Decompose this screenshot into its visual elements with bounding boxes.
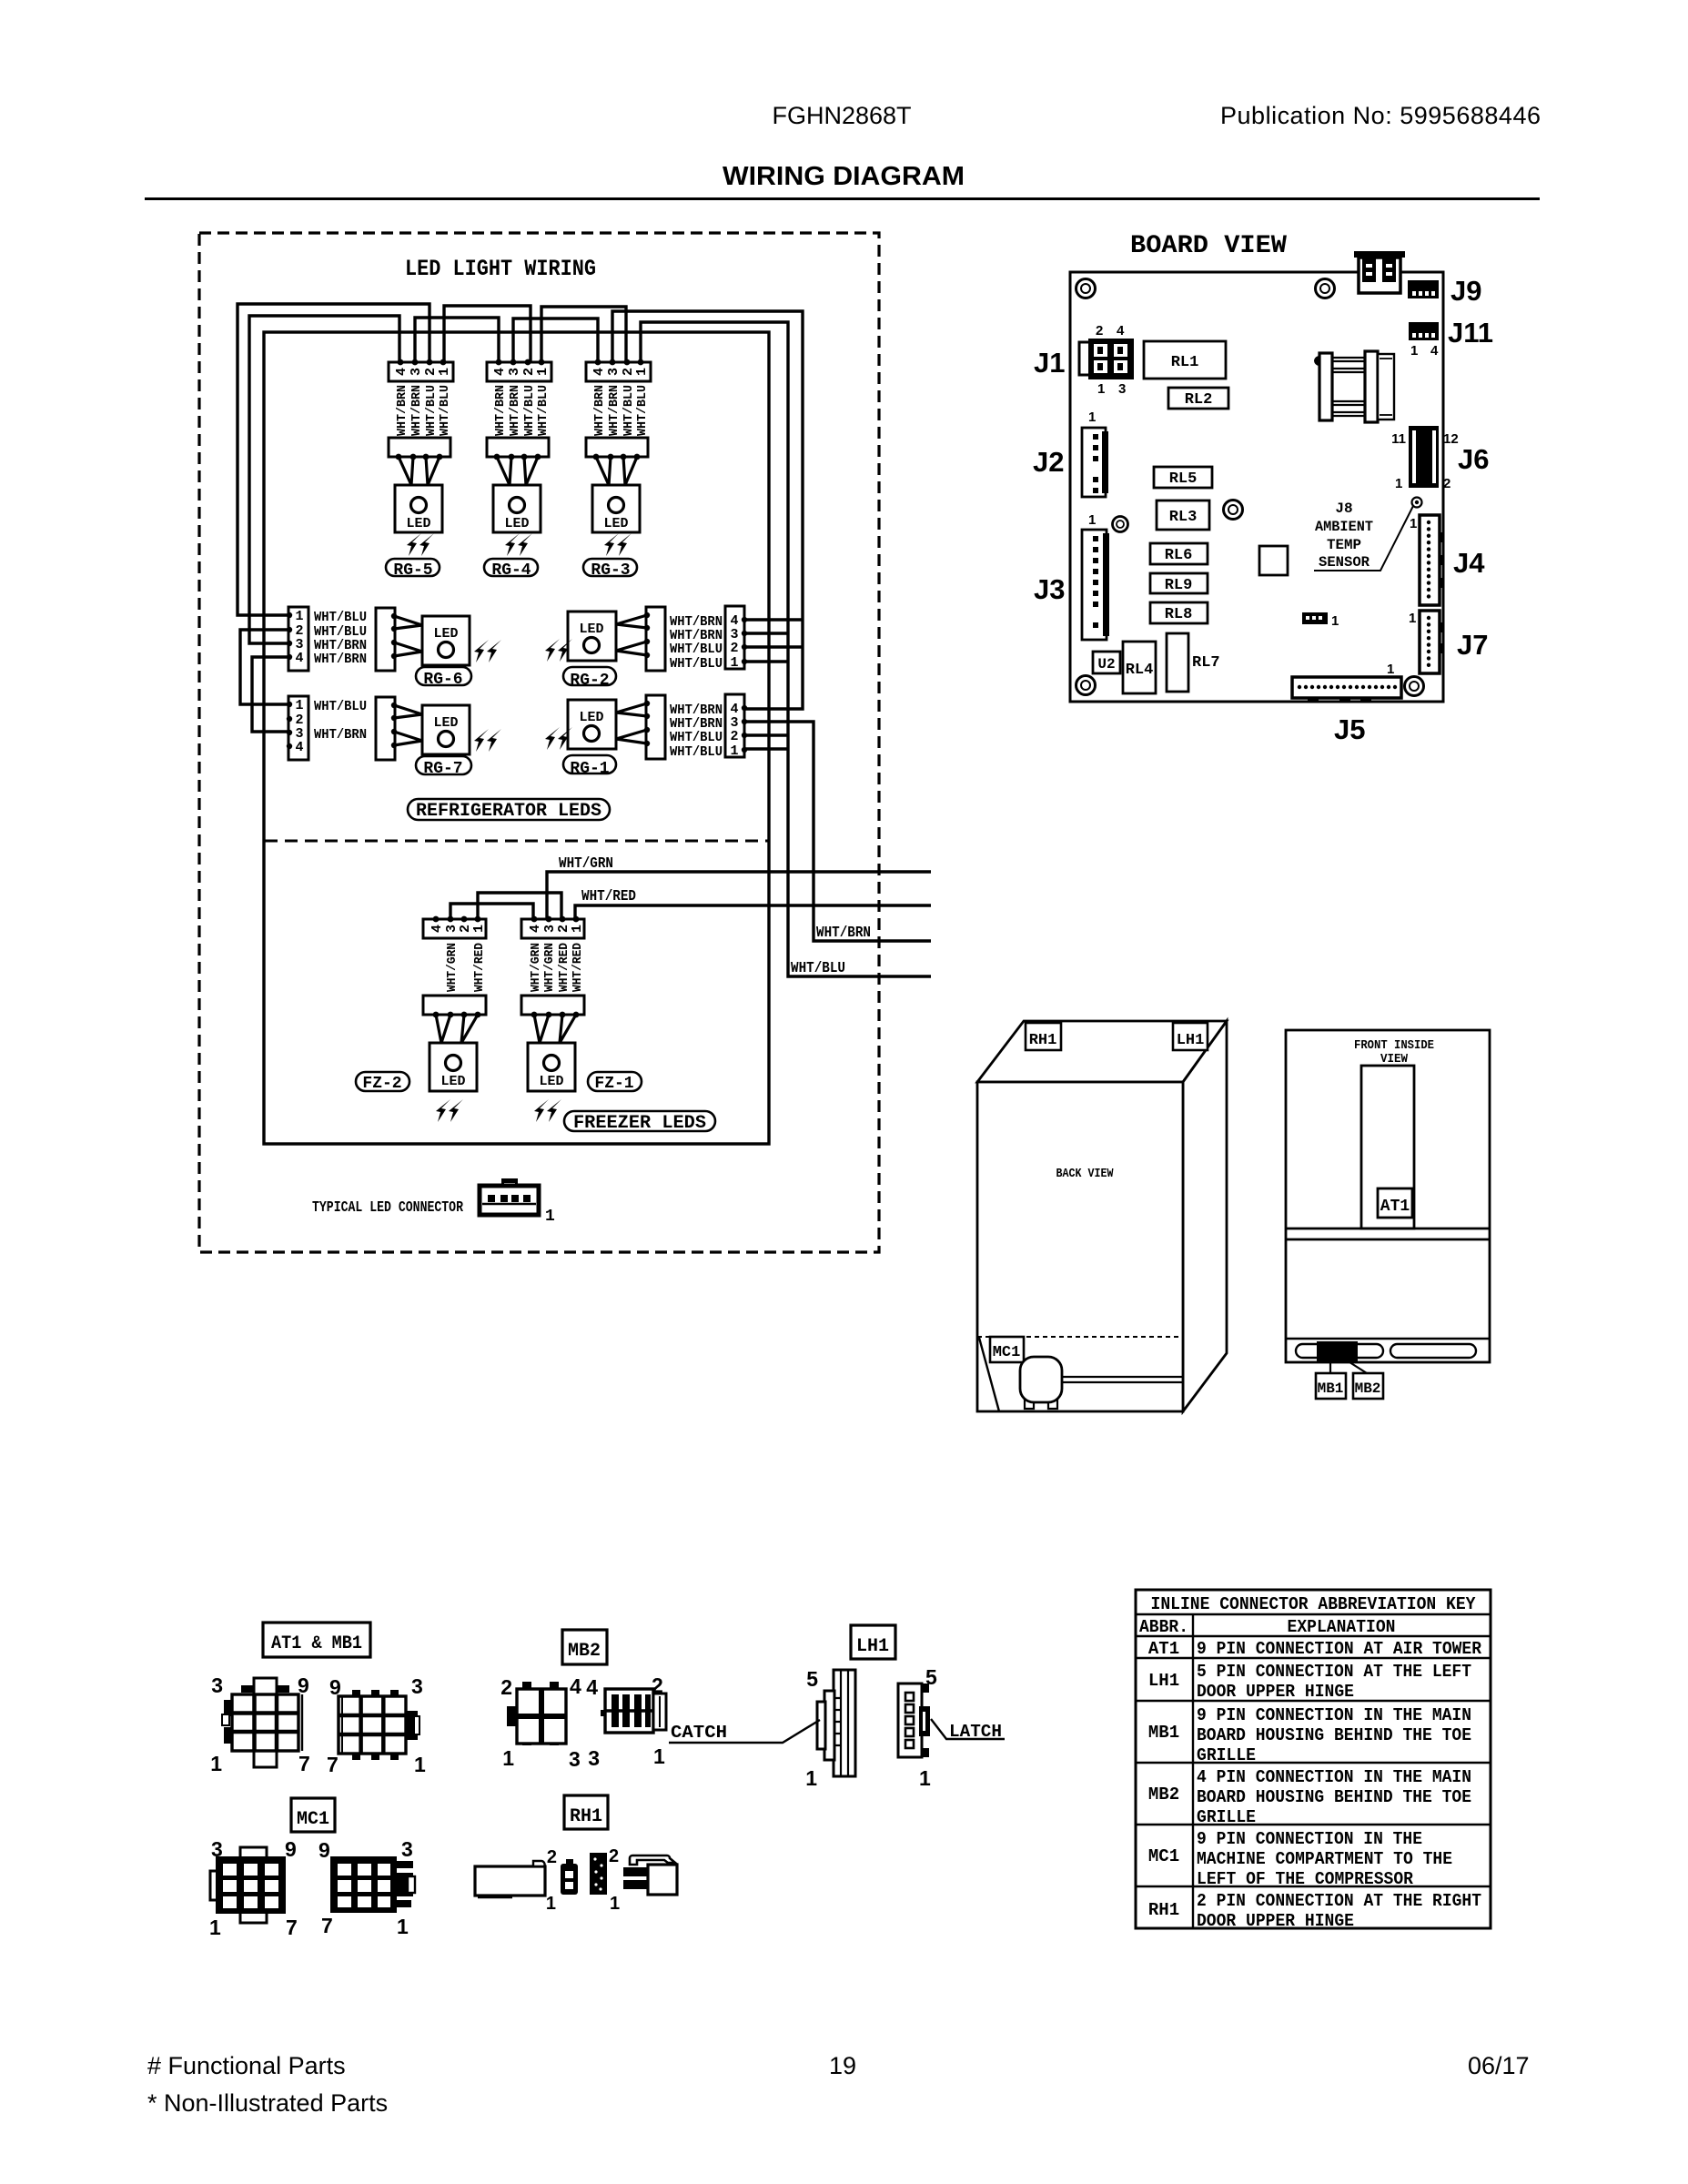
svg-text:WHT/GRN: WHT/GRN	[445, 943, 460, 992]
svg-text:1: 1	[1088, 409, 1096, 425]
svg-text:RL3: RL3	[1169, 509, 1198, 526]
svg-text:U2: U2	[1097, 656, 1115, 672]
svg-text:WHT/BLU: WHT/BLU	[424, 385, 439, 436]
svg-text:WHT/BRN: WHT/BRN	[592, 385, 607, 436]
svg-text:RL8: RL8	[1165, 606, 1193, 623]
svg-text:9: 9	[318, 1838, 330, 1862]
svg-text:WHT/BLU: WHT/BLU	[635, 385, 650, 436]
svg-text:DOOR UPPER HINGE: DOOR UPPER HINGE	[1197, 1682, 1354, 1702]
svg-text:# Functional Parts: # Functional Parts	[147, 2052, 346, 2079]
svg-text:MB1: MB1	[1318, 1380, 1344, 1397]
svg-text:RL9: RL9	[1165, 577, 1193, 594]
svg-text:RG-2: RG-2	[570, 672, 609, 690]
svg-text:RL4: RL4	[1126, 662, 1154, 679]
svg-text:9: 9	[285, 1837, 297, 1861]
svg-text:1: 1	[653, 1744, 665, 1768]
svg-text:LH1: LH1	[1177, 1032, 1205, 1049]
svg-text:WHT/BLU: WHT/BLU	[670, 642, 723, 657]
svg-text:FZ-2: FZ-2	[362, 1075, 401, 1093]
svg-text:J5: J5	[1334, 713, 1365, 745]
svg-text:9: 9	[298, 1673, 309, 1697]
svg-text:J7: J7	[1457, 629, 1488, 661]
svg-text:1: 1	[610, 1894, 620, 1914]
svg-text:MACHINE COMPARTMENT TO THE: MACHINE COMPARTMENT TO THE	[1197, 1849, 1452, 1869]
svg-text:19: 19	[829, 2052, 856, 2079]
svg-text:9 PIN CONNECTION IN THE: 9 PIN CONNECTION IN THE	[1197, 1829, 1422, 1849]
svg-text:WHT/BRN: WHT/BRN	[607, 385, 622, 436]
svg-text:1: 1	[1088, 512, 1096, 528]
svg-text:AT1: AT1	[1380, 1198, 1410, 1216]
svg-text:AMBIENT: AMBIENT	[1315, 519, 1373, 535]
svg-text:1: 1	[1395, 476, 1402, 491]
svg-text:J3: J3	[1034, 573, 1065, 605]
svg-text:1: 1	[414, 1753, 426, 1776]
svg-text:4 PIN CONNECTION IN THE MAIN: 4 PIN CONNECTION IN THE MAIN	[1197, 1767, 1471, 1787]
svg-text:WHT/BLU: WHT/BLU	[314, 699, 367, 714]
svg-text:DOOR UPPER HINGE: DOOR UPPER HINGE	[1197, 1911, 1354, 1931]
svg-text:BACK VIEW: BACK VIEW	[1056, 1167, 1114, 1181]
svg-text:3: 3	[211, 1837, 223, 1861]
svg-text:WHT/BRN: WHT/BRN	[395, 385, 409, 436]
svg-text:J1: J1	[1034, 347, 1065, 379]
svg-text:3: 3	[411, 1674, 423, 1698]
svg-text:RG-1: RG-1	[570, 760, 609, 778]
svg-text:WHT/BLU: WHT/BLU	[536, 385, 551, 436]
svg-text:MB2: MB2	[568, 1641, 601, 1662]
svg-text:J2: J2	[1033, 446, 1064, 478]
svg-text:FREEZER LEDS: FREEZER LEDS	[573, 1113, 706, 1134]
svg-text:LH1: LH1	[856, 1636, 889, 1657]
svg-text:RH1: RH1	[1148, 1900, 1179, 1920]
svg-text:EXPLANATION: EXPLANATION	[1288, 1617, 1396, 1637]
svg-text:WIRING DIAGRAM: WIRING DIAGRAM	[723, 162, 965, 191]
svg-text:1: 1	[805, 1766, 817, 1790]
svg-text:WHT/BLU: WHT/BLU	[438, 385, 452, 436]
svg-text:2: 2	[1443, 476, 1450, 491]
svg-text:* Non-Illustrated Parts: * Non-Illustrated Parts	[147, 2089, 388, 2117]
svg-text:RG-6: RG-6	[423, 671, 462, 689]
svg-text:5: 5	[806, 1667, 818, 1691]
svg-text:AT1 & MB1: AT1 & MB1	[271, 1633, 362, 1654]
svg-text:WHT/GRN: WHT/GRN	[559, 855, 613, 873]
svg-text:MB1: MB1	[1148, 1723, 1179, 1743]
svg-text:1: 1	[1410, 343, 1418, 359]
svg-text:1: 1	[210, 1752, 222, 1775]
svg-text:WHT/BRN: WHT/BRN	[508, 385, 522, 436]
svg-text:9 PIN CONNECTION IN THE MAIN: 9 PIN CONNECTION IN THE MAIN	[1197, 1705, 1471, 1725]
svg-text:5 PIN CONNECTION AT THE LEFT: 5 PIN CONNECTION AT THE LEFT	[1197, 1662, 1471, 1682]
svg-text:SENSOR: SENSOR	[1319, 554, 1370, 571]
svg-text:GRILLE: GRILLE	[1197, 1745, 1256, 1765]
svg-text:GRILLE: GRILLE	[1197, 1807, 1256, 1827]
svg-text:2 PIN CONNECTION AT THE RIGHT: 2 PIN CONNECTION AT THE RIGHT	[1197, 1891, 1481, 1911]
svg-text:WHT/BRN: WHT/BRN	[314, 727, 367, 743]
svg-text:MC1: MC1	[993, 1344, 1021, 1361]
svg-text:7: 7	[298, 1752, 310, 1775]
svg-text:2: 2	[547, 1847, 557, 1867]
svg-text:1: 1	[546, 1894, 556, 1914]
svg-text:J6: J6	[1458, 443, 1489, 475]
svg-text:WHT/GRN: WHT/GRN	[529, 943, 543, 992]
svg-text:1: 1	[1097, 381, 1105, 397]
svg-text:RH1: RH1	[570, 1806, 602, 1827]
svg-text:WHT/RED: WHT/RED	[557, 943, 571, 992]
svg-text:3: 3	[1118, 381, 1126, 397]
svg-text:2: 2	[500, 1675, 512, 1699]
svg-text:2: 2	[1096, 323, 1103, 339]
svg-text:VIEW: VIEW	[1380, 1052, 1409, 1067]
svg-text:BOARD VIEW: BOARD VIEW	[1130, 232, 1287, 260]
svg-text:RG-4: RG-4	[491, 561, 531, 580]
svg-text:TYPICAL LED CONNECTOR: TYPICAL LED CONNECTOR	[312, 1199, 464, 1217]
svg-text:RL6: RL6	[1165, 547, 1193, 564]
svg-text:MB2: MB2	[1355, 1380, 1381, 1397]
svg-text:3: 3	[211, 1673, 223, 1697]
svg-text:2: 2	[609, 1846, 619, 1866]
svg-text:1: 1	[1331, 613, 1339, 629]
svg-text:WHT/BRN: WHT/BRN	[314, 652, 367, 667]
svg-text:Publication No: 5995688446: Publication No: 5995688446	[1220, 102, 1541, 129]
svg-text:RL2: RL2	[1185, 391, 1213, 409]
svg-text:LH1: LH1	[1148, 1671, 1179, 1691]
svg-text:CATCH: CATCH	[671, 1723, 727, 1743]
svg-text:1: 1	[1387, 662, 1394, 677]
svg-text:7: 7	[286, 1916, 298, 1939]
svg-text:J8: J8	[1335, 500, 1352, 517]
svg-text:WHT/BLU: WHT/BLU	[670, 744, 723, 760]
svg-text:5: 5	[925, 1665, 937, 1689]
svg-text:2: 2	[652, 1673, 663, 1697]
svg-text:INLINE CONNECTOR ABBREVIATION: INLINE CONNECTOR ABBREVIATION KEY	[1151, 1594, 1477, 1614]
svg-text:TEMP: TEMP	[1327, 537, 1361, 553]
svg-text:RL1: RL1	[1171, 354, 1199, 371]
svg-text:1: 1	[397, 1915, 409, 1938]
svg-text:4: 4	[1430, 343, 1439, 359]
svg-text:4: 4	[570, 1674, 581, 1698]
svg-text:BOARD HOUSING BEHIND THE TOE: BOARD HOUSING BEHIND THE TOE	[1197, 1725, 1471, 1745]
svg-text:1: 1	[502, 1746, 514, 1770]
svg-text:12: 12	[1443, 431, 1459, 447]
svg-text:REFRIGERATOR LEDS: REFRIGERATOR LEDS	[416, 801, 601, 822]
svg-text:11: 11	[1391, 431, 1406, 447]
svg-text:RL5: RL5	[1169, 470, 1198, 488]
svg-text:3: 3	[569, 1747, 581, 1771]
svg-text:RG-7: RG-7	[423, 760, 462, 778]
svg-text:FRONT INSIDE: FRONT INSIDE	[1354, 1038, 1434, 1053]
svg-text:RG-3: RG-3	[591, 561, 630, 580]
svg-text:RG-5: RG-5	[393, 561, 432, 580]
svg-text:9: 9	[329, 1675, 341, 1699]
svg-text:WHT/BRN: WHT/BRN	[493, 385, 508, 436]
svg-text:WHT/BRN: WHT/BRN	[409, 385, 424, 436]
svg-text:WHT/BLU: WHT/BLU	[670, 730, 723, 745]
svg-text:J11: J11	[1448, 317, 1493, 349]
svg-text:J9: J9	[1450, 275, 1481, 307]
svg-text:7: 7	[327, 1753, 339, 1776]
svg-text:WHT/BLU: WHT/BLU	[670, 656, 723, 672]
svg-text:1: 1	[1410, 516, 1417, 531]
svg-text:WHT/RED: WHT/RED	[472, 943, 487, 992]
svg-text:3: 3	[401, 1837, 413, 1861]
svg-text:3: 3	[588, 1746, 600, 1770]
svg-text:1: 1	[919, 1766, 931, 1790]
svg-text:WHT/BLU: WHT/BLU	[522, 385, 537, 436]
svg-text:LED LIGHT WIRING: LED LIGHT WIRING	[405, 256, 596, 282]
svg-text:MC1: MC1	[1148, 1846, 1179, 1866]
svg-text:1: 1	[209, 1916, 221, 1939]
svg-text:9 PIN CONNECTION AT AIR TOWER: 9 PIN CONNECTION AT AIR TOWER	[1197, 1639, 1482, 1659]
svg-text:1: 1	[545, 1208, 555, 1226]
svg-text:ABBR.: ABBR.	[1139, 1617, 1188, 1637]
svg-text:FGHN2868T: FGHN2868T	[772, 102, 911, 129]
svg-text:WHT/BLU: WHT/BLU	[791, 960, 845, 977]
svg-text:FZ-1: FZ-1	[594, 1075, 633, 1093]
svg-text:WHT/RED: WHT/RED	[571, 943, 585, 992]
svg-text:4: 4	[586, 1675, 598, 1699]
svg-text:WHT/BLU: WHT/BLU	[314, 610, 367, 625]
svg-text:1: 1	[1409, 611, 1416, 626]
svg-text:WHT/GRN: WHT/GRN	[542, 943, 557, 992]
svg-text:4: 4	[1117, 323, 1125, 339]
svg-text:WHT/BLU: WHT/BLU	[622, 385, 636, 436]
svg-text:MC1: MC1	[297, 1809, 329, 1830]
svg-text:06/17: 06/17	[1468, 2052, 1530, 2079]
svg-text:RH1: RH1	[1029, 1032, 1057, 1049]
svg-text:MB2: MB2	[1148, 1785, 1179, 1805]
svg-text:BOARD HOUSING BEHIND THE TOE: BOARD HOUSING BEHIND THE TOE	[1197, 1787, 1471, 1807]
svg-text:RL7: RL7	[1192, 654, 1220, 672]
svg-text:WHT/BRN: WHT/BRN	[816, 925, 871, 942]
svg-text:WHT/RED: WHT/RED	[581, 888, 636, 905]
svg-text:AT1: AT1	[1148, 1639, 1179, 1659]
svg-text:7: 7	[321, 1914, 333, 1937]
svg-text:J4: J4	[1453, 547, 1485, 579]
svg-text:LEFT OF THE COMPRESSOR: LEFT OF THE COMPRESSOR	[1197, 1869, 1414, 1889]
